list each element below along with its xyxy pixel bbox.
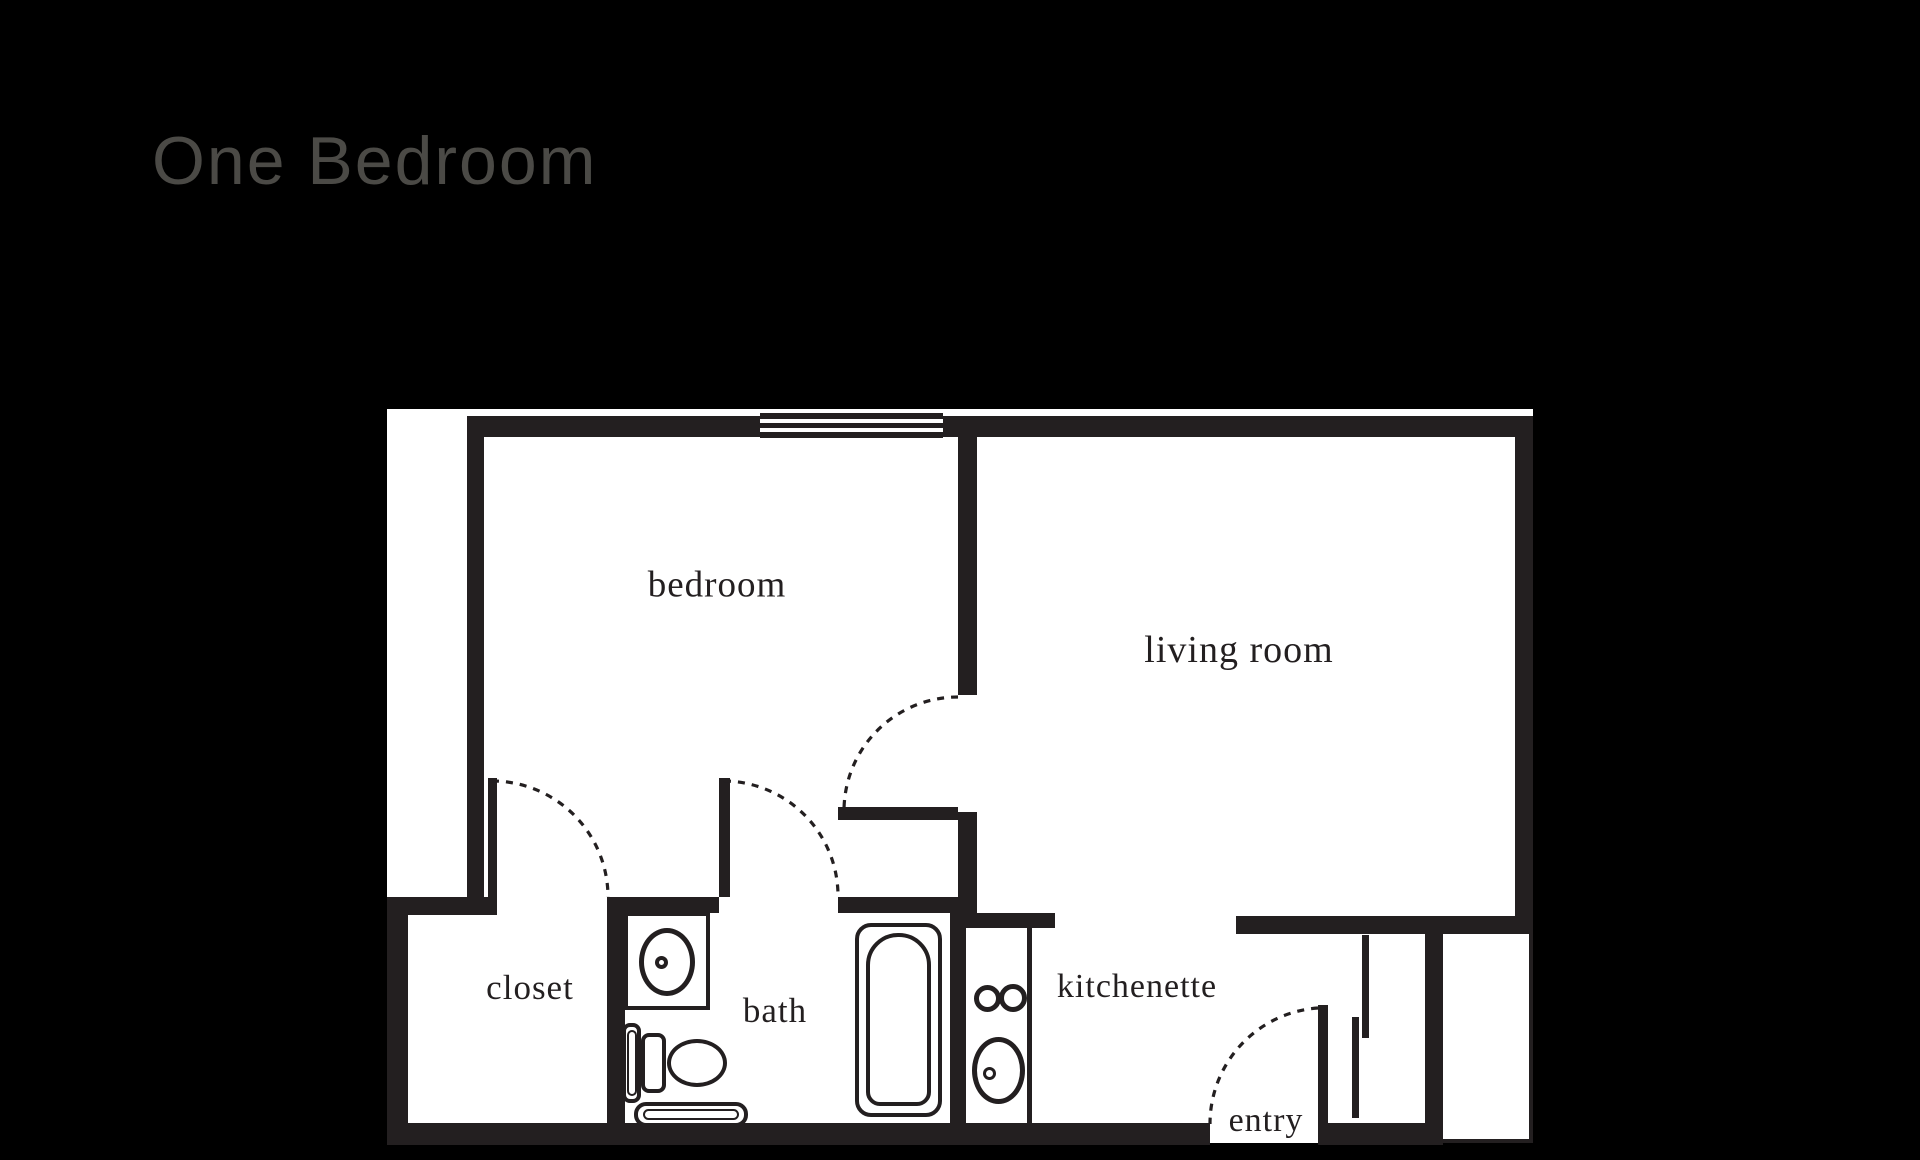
wall-living-south: [1236, 916, 1533, 934]
wall-bedroom-left: [467, 416, 484, 915]
bedroom-label: bedroom: [648, 564, 787, 607]
toilet-base-icon: [641, 1033, 666, 1093]
kitchenette-label: kitchenette: [1057, 968, 1217, 1006]
entry-door-leaf: [1318, 1005, 1328, 1127]
sliding-door-panel-back: [1362, 935, 1369, 1038]
porch-edge-right: [1529, 934, 1533, 1143]
stove-burner-left-icon: [974, 985, 1001, 1012]
closet-label: closet: [486, 968, 574, 1008]
wall-entry-right: [1425, 934, 1443, 1145]
wall-hall-vertical: [958, 812, 977, 913]
wall-top-exterior: [467, 416, 1533, 437]
stove-burner-right-icon: [999, 984, 1027, 1012]
window-icon: [760, 413, 943, 438]
bath-door-leaf: [719, 778, 730, 897]
wall-bottom-left: [387, 1123, 1210, 1145]
wall-bath-north: [838, 897, 958, 913]
kitchen-counter-edge: [1027, 928, 1032, 1125]
page-title: One Bedroom: [152, 122, 597, 200]
wall-closet-bath-divider: [607, 897, 625, 1145]
wall-right-exterior: [1515, 416, 1533, 934]
closet-door-leaf: [488, 778, 497, 897]
toilet-bowl-icon: [667, 1039, 727, 1087]
bathtub-basin-icon: [866, 933, 931, 1106]
bath-label: bath: [743, 991, 807, 1031]
wall-left-exterior: [387, 897, 408, 1145]
bath-mat-inner-icon: [643, 1109, 739, 1120]
porch-edge-bottom: [1443, 1139, 1533, 1143]
vanity-drain-icon: [655, 956, 668, 969]
hall-door-leaf: [838, 807, 958, 820]
living-room-label: living room: [1144, 628, 1333, 672]
kitchen-sink-icon: [972, 1037, 1025, 1104]
entry-label: entry: [1229, 1102, 1304, 1140]
wall-bedroom-living-divider: [958, 437, 977, 695]
kitchen-sink-drain-icon: [983, 1067, 996, 1080]
toilet-tank-inner-icon: [627, 1030, 637, 1096]
window-mullion: [760, 423, 943, 428]
sliding-door-panel-front: [1352, 1017, 1359, 1118]
floor-plan-page: One Bedroom: [0, 0, 1920, 1160]
wall-bath-kitchenette: [950, 913, 966, 1125]
wall-bottom-right: [1318, 1123, 1443, 1145]
